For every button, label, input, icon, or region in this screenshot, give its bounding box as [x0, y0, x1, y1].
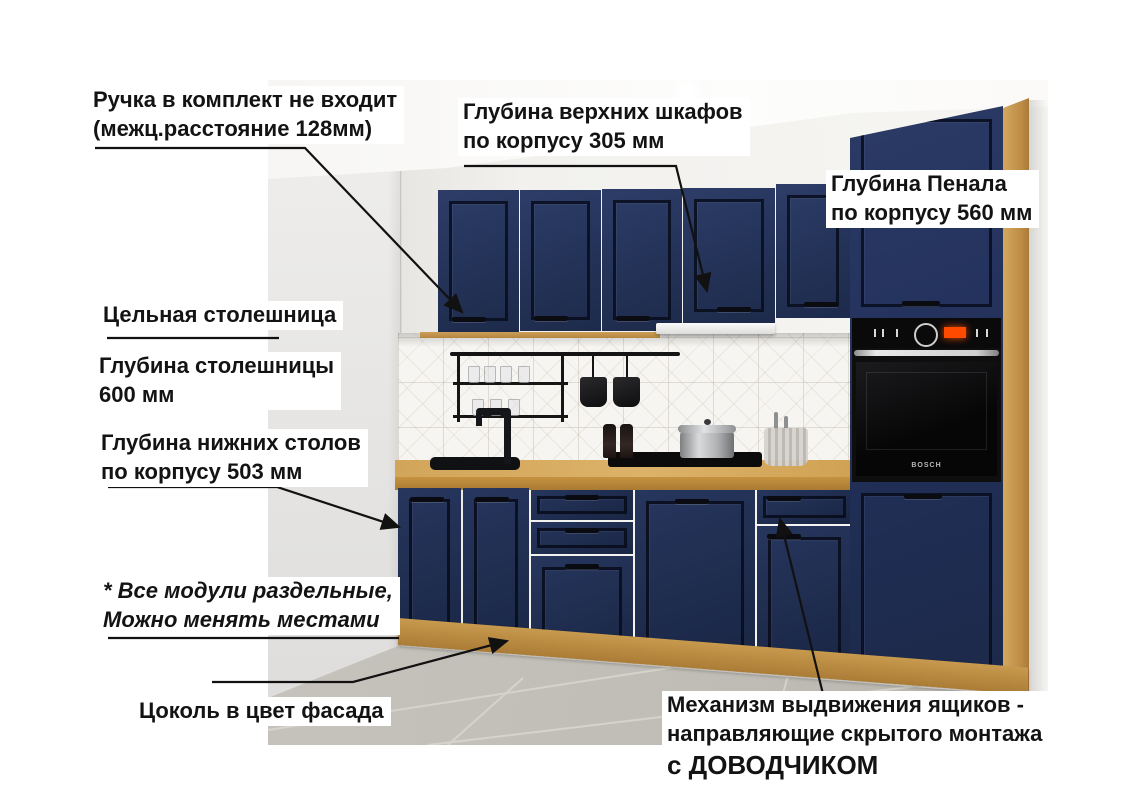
- label-line: по корпусу 305 мм: [458, 127, 750, 156]
- cabinet-bottom-trim: [420, 332, 660, 338]
- wall-cabinet-door-3: [602, 189, 682, 331]
- oven-icon: [882, 329, 884, 337]
- pot-lid: [678, 425, 736, 433]
- label-modules-note: * Все модули раздельные, Можно менять ме…: [98, 577, 400, 635]
- cabinet-handle: [452, 317, 486, 322]
- drawer-handle: [565, 495, 599, 500]
- label-line: Глубина нижних столов: [96, 429, 368, 458]
- oven-handle: [854, 350, 999, 356]
- label-base-depth: Глубина нижних столов по корпусу 503 мм: [96, 429, 368, 487]
- pepper-mill: [603, 424, 616, 458]
- faucet-post: [504, 410, 511, 464]
- label-handle-note: Ручка в комплект не входит (межц.расстоя…: [88, 86, 404, 144]
- drawer-front-middle: [531, 522, 633, 554]
- label-plinth-note: Цоколь в цвет фасада: [134, 697, 391, 726]
- label-tall-depth: Глубина Пенала по корпусу 560 мм: [826, 170, 1039, 228]
- pepper-mill: [620, 424, 633, 458]
- oven-door-glass: BOSCH: [856, 362, 997, 476]
- door-panel: [861, 493, 992, 677]
- faucet-spout: [476, 413, 482, 426]
- oven-control-panel: [852, 318, 1001, 348]
- label-line: Глубина столешницы: [94, 352, 341, 381]
- drawer-handle: [565, 564, 599, 569]
- label-countertop-depth: Глубина столешницы 600 мм: [94, 352, 341, 410]
- label-line: * Все модули раздельные,: [98, 577, 400, 606]
- drawer-handle: [565, 528, 599, 533]
- glass: [500, 366, 512, 383]
- oven-icon: [874, 329, 876, 337]
- label-drawer-mechanism: Механизм выдвижения ящиков - направляющи…: [662, 691, 1049, 783]
- label-line: по корпусу 560 мм: [826, 199, 1039, 228]
- oven-icon: [976, 329, 978, 337]
- door-panel: [531, 201, 590, 320]
- right-drawer-front-top: [757, 490, 852, 524]
- label-line: направляющие скрытого монтажа: [662, 720, 1049, 749]
- wall-cabinet-door-4: [683, 188, 775, 323]
- wall-cabinet-door-2: [520, 190, 601, 331]
- label-line: Ручка в комплект не входит: [88, 86, 404, 115]
- oven-display: [944, 327, 966, 338]
- wall-rail: [450, 352, 680, 356]
- drawer-front-top: [531, 490, 633, 520]
- shelf-post: [561, 356, 564, 422]
- label-line: Глубина верхних шкафов: [458, 98, 750, 127]
- glass: [468, 366, 480, 383]
- label-line: Цельная столешница: [98, 301, 343, 330]
- label-line: Механизм выдвижения ящиков -: [662, 691, 1049, 720]
- cooking-pot: [680, 432, 734, 458]
- pot-lid-knob: [704, 419, 711, 425]
- door-panel: [449, 201, 508, 321]
- oven-icon: [986, 329, 988, 337]
- label-line: с ДОВОДЧИКОМ: [662, 749, 1049, 783]
- cabinet-handle: [804, 302, 838, 307]
- cabinet-handle: [410, 497, 444, 502]
- product-image-canvas: BOSCH: [0, 0, 1123, 794]
- label-line: (межц.расстояние 128мм): [88, 115, 404, 144]
- wall-cabinet-door-1: [438, 190, 519, 332]
- cabinet-handle: [475, 497, 509, 502]
- cabinet-handle: [902, 301, 940, 306]
- label-line: по корпусу 503 мм: [96, 458, 368, 487]
- glass: [484, 366, 496, 383]
- oven-icon: [896, 329, 898, 337]
- cabinet-handle: [717, 307, 751, 312]
- cabinet-handle: [534, 316, 568, 321]
- drawer-handle: [767, 534, 801, 539]
- range-hood: [656, 323, 775, 334]
- hanging-utensil-cup: [580, 377, 607, 407]
- drawer-panel: [768, 537, 841, 663]
- label-upper-depth: Глубина верхних шкафов по корпусу 305 мм: [458, 98, 750, 156]
- cabinet-handle: [616, 316, 650, 321]
- label-solid-countertop: Цельная столешница: [98, 301, 343, 330]
- cabinet-handle: [675, 499, 709, 504]
- label-line: Цоколь в цвет фасада: [134, 697, 391, 726]
- shelf-post: [457, 356, 460, 422]
- utensil-holder: [764, 428, 808, 466]
- hanging-utensil-cup: [613, 377, 640, 407]
- oven-brand-logo: BOSCH: [856, 462, 997, 469]
- label-line: Можно менять местами: [98, 606, 400, 635]
- glass: [518, 366, 530, 383]
- label-line: 600 мм: [94, 381, 341, 410]
- oven-dial: [914, 323, 938, 347]
- cabinet-handle: [904, 494, 942, 499]
- built-in-oven: BOSCH: [852, 318, 1001, 482]
- label-line: Глубина Пенала: [826, 170, 1039, 199]
- door-panel: [694, 199, 764, 312]
- door-panel: [613, 200, 671, 320]
- drawer-handle: [767, 496, 801, 501]
